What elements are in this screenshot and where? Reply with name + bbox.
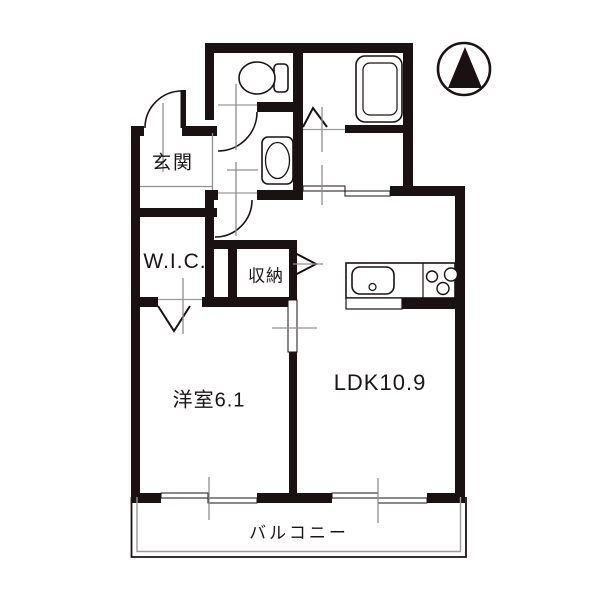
wall <box>257 190 303 200</box>
wall <box>427 493 465 503</box>
counter-lip <box>346 298 402 309</box>
wall <box>390 186 465 196</box>
washroom-sliding-door <box>345 191 390 196</box>
wall <box>257 102 303 112</box>
bedroom-balcony-window <box>208 498 257 503</box>
wic-folding-door <box>158 306 190 331</box>
wall <box>131 126 144 136</box>
ldk-label: LDK10.9 <box>334 370 427 396</box>
wall <box>455 186 465 503</box>
wall <box>131 126 140 503</box>
sink-drain <box>369 284 376 291</box>
wall <box>345 125 413 133</box>
floorplan-drawing <box>0 0 600 600</box>
washroom-sliding-door <box>303 186 345 191</box>
toilet-bowl <box>239 62 275 94</box>
wall <box>202 297 297 307</box>
bedroom-balcony-window <box>161 493 208 498</box>
wall <box>205 43 413 53</box>
wall <box>289 352 297 493</box>
wall <box>403 43 413 196</box>
wall <box>205 43 214 120</box>
entrance-door-leaf <box>181 90 187 128</box>
toilet-tank <box>274 64 288 92</box>
wall <box>402 298 455 309</box>
ldk-balcony-window <box>332 493 378 498</box>
toilet-icon <box>239 62 288 94</box>
bedroom-label: 洋室6.1 <box>173 384 246 413</box>
ldk-balcony-window <box>378 498 427 503</box>
wall <box>228 249 237 297</box>
washbasin-icon <box>262 137 293 184</box>
washroom-door-arc <box>215 200 252 237</box>
wall <box>131 208 217 217</box>
wall <box>182 126 217 136</box>
genkan-label: 玄関 <box>152 148 194 175</box>
wall <box>293 43 303 196</box>
bathtub-icon <box>356 56 402 122</box>
wic-label: W.I.C. <box>143 250 206 274</box>
toilet-door-arc <box>218 112 257 151</box>
wall <box>257 493 332 503</box>
storage-label: 収納 <box>248 262 284 287</box>
bath-folding-door <box>303 108 327 127</box>
wall <box>205 240 297 249</box>
balcony-label: バルコニー <box>249 519 349 544</box>
north-arrow-icon <box>438 43 490 95</box>
wall <box>131 297 158 307</box>
floorplan-page: 玄関 W.I.C. 収納 洋室6.1 LDK10.9 バルコニー <box>0 0 600 600</box>
room-partition-sliding-door <box>288 300 297 352</box>
